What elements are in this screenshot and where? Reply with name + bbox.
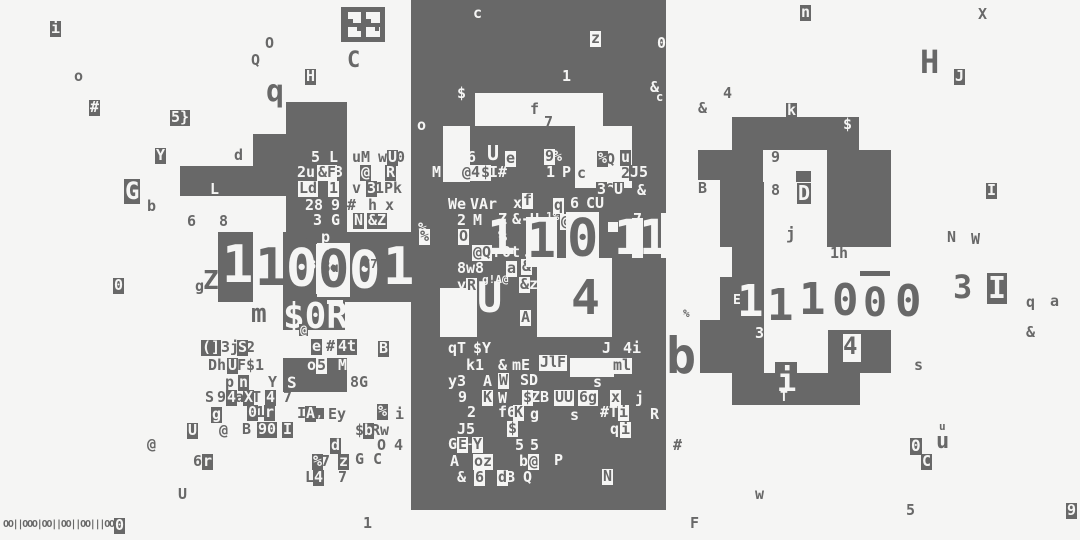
glitch-char: j xyxy=(786,226,796,243)
glitch-char: 1Pk xyxy=(375,181,402,197)
glitch-char: # xyxy=(89,100,100,116)
glitch-char: 9 xyxy=(217,390,226,406)
glitch-char: @4 xyxy=(461,165,481,181)
glitch-char: 8 xyxy=(321,259,331,276)
glitch-char: 4 xyxy=(843,334,857,359)
glitch-char: j xyxy=(635,391,644,407)
glitch-char: J xyxy=(954,69,965,85)
glitch-char: g xyxy=(530,407,539,423)
glitch-char: f xyxy=(530,102,539,118)
glitch-char: u xyxy=(936,431,949,454)
glitch-char: % xyxy=(419,229,430,245)
glitch-char: @ xyxy=(147,437,156,453)
glitch-char: 0 xyxy=(894,279,923,325)
glitch-char: 2 xyxy=(246,340,255,356)
glitch-char: U xyxy=(187,423,198,439)
glitch-char: a xyxy=(1050,294,1059,310)
glitch-char: x xyxy=(385,198,394,214)
glitch-char: C xyxy=(373,452,382,468)
glitch-char: 0 xyxy=(831,278,860,324)
glitch-char: r xyxy=(264,405,275,421)
glitch-char: 5 xyxy=(638,165,649,181)
glitch-char: SD xyxy=(520,373,538,389)
glitch-char: 4 xyxy=(723,86,732,102)
glitch-char: 8 xyxy=(219,214,228,230)
glitch-char: F$1 xyxy=(237,358,264,374)
glitch-char: B xyxy=(378,341,389,357)
glitch-char: 9 xyxy=(458,390,467,406)
glitch-char: F xyxy=(556,355,567,371)
glitch-char: R xyxy=(650,407,659,423)
glitch-char: 3 xyxy=(953,271,972,304)
glitch-char: G xyxy=(448,437,457,453)
glitch-char: H xyxy=(920,46,939,79)
glitch-char: Q xyxy=(606,152,615,168)
glitch-char: 6 xyxy=(474,470,485,486)
glitch-char: Y xyxy=(472,437,483,453)
glitch-char: q xyxy=(266,76,284,107)
glitch-char: k1 xyxy=(466,358,484,374)
glitch-char: U xyxy=(613,182,624,198)
glitch-char: U xyxy=(477,276,502,320)
glitch-char: ' xyxy=(219,295,230,314)
glitch-char: W xyxy=(498,373,509,389)
glitch-char: N xyxy=(602,469,613,485)
glitch-char: M xyxy=(338,358,347,374)
glitch-char: , xyxy=(315,408,324,419)
glitch-char: o xyxy=(74,69,83,85)
glitch-char: B xyxy=(242,422,251,438)
glitch-char: @ xyxy=(299,324,308,336)
glitch-char: H xyxy=(305,69,316,85)
glitch-char: 7 xyxy=(544,115,553,131)
glitch-char: 1h xyxy=(830,246,848,262)
glitch-char: N xyxy=(604,193,611,205)
glitch-char: 1 xyxy=(526,217,557,267)
glitch-char: $ xyxy=(507,421,518,437)
glitch-char: 6g xyxy=(578,390,598,406)
glitch-char: O xyxy=(458,229,469,245)
glitch-char: (] xyxy=(201,340,221,356)
glitch-char: 0 xyxy=(566,212,599,266)
glitch-char: c xyxy=(656,91,663,103)
glitch-char: Ey xyxy=(328,407,346,423)
glitch-char: e xyxy=(311,339,322,355)
glitch-char: R xyxy=(466,278,477,294)
glitch-char: o xyxy=(417,118,426,134)
glitch-char: P xyxy=(554,453,563,469)
glitch-char: D xyxy=(797,183,811,204)
glitch-char: 1 xyxy=(737,279,764,325)
glitch-char: 6 xyxy=(193,454,202,470)
glitch-char: Ld xyxy=(298,181,318,197)
glitch-char: 5 xyxy=(316,358,327,374)
icon-nub xyxy=(357,27,361,31)
glitch-char: I xyxy=(987,273,1007,304)
glitch-char: K xyxy=(482,390,493,406)
glitch-char: v xyxy=(352,181,361,197)
glitch-char: W xyxy=(971,232,980,248)
glitch-char: Z xyxy=(203,268,219,295)
glitch-char: UU xyxy=(554,390,574,406)
glitch-char: 0 xyxy=(862,283,888,325)
glitch-char: & xyxy=(457,470,466,486)
glitch-char: Y xyxy=(155,148,166,164)
glitch-char: w xyxy=(755,487,764,503)
glitch-char: P xyxy=(562,165,571,181)
glitch-char: & xyxy=(637,183,646,199)
glitch-char: J xyxy=(602,341,611,357)
glitch-char: 0 xyxy=(910,438,922,455)
glitch-char: S xyxy=(287,375,297,392)
glitch-char: O xyxy=(265,36,274,52)
glitch-char: c" xyxy=(318,247,330,257)
glitch-char: 1 xyxy=(255,241,286,295)
glitch-char: 4 xyxy=(394,438,403,454)
glitch-char: c xyxy=(473,6,482,22)
glitch-char: U xyxy=(178,487,187,503)
glitch-char: m xyxy=(251,301,267,328)
icon-nub xyxy=(366,19,371,23)
glitch-char: 0 xyxy=(657,36,666,52)
glitch-char: y xyxy=(457,278,466,294)
glitch-char: # xyxy=(326,339,335,355)
glitch-char: C7 xyxy=(363,258,377,270)
glitch-char: 1 xyxy=(546,165,555,181)
glitch-char: B xyxy=(506,470,515,486)
glitch-char: 7 xyxy=(338,470,347,486)
glitch-char: U xyxy=(487,143,499,164)
glitch-char: 3 xyxy=(755,326,764,342)
glitch-char: i xyxy=(620,422,631,438)
glitch-char: Q xyxy=(251,53,260,69)
glitch-char: & xyxy=(1026,325,1035,341)
glitch-char: 1 xyxy=(562,69,571,85)
glitch-char: d xyxy=(234,148,243,164)
glitch-char: 6 xyxy=(187,214,196,230)
glitch-char: 1 xyxy=(363,516,372,532)
glitch-char: M xyxy=(473,213,482,229)
glitch-char: s xyxy=(570,408,579,424)
glitch-char: G xyxy=(331,213,340,229)
glitch-char: C xyxy=(347,50,360,73)
glitch-char: T xyxy=(780,391,788,405)
glitch-block xyxy=(700,320,732,373)
glitch-char: qT xyxy=(448,341,466,357)
glitch-char: I# xyxy=(489,165,507,181)
glitch-char: 7 xyxy=(283,390,292,406)
glitch-char: ml xyxy=(612,358,632,374)
glitch-char: i xyxy=(618,405,629,421)
glitch-char: n xyxy=(800,5,811,21)
glitch-char: c xyxy=(577,166,586,182)
glitch-char: k xyxy=(786,103,797,119)
glitch-char: L xyxy=(210,182,219,198)
glitch-char: b xyxy=(666,330,696,382)
glitch-block xyxy=(698,150,720,180)
glitch-char: i xyxy=(50,21,61,37)
glitch-char: $0R xyxy=(283,298,348,335)
glitch-char: r xyxy=(202,454,213,470)
glitch-char: i xyxy=(395,407,404,423)
glitch-char: 0 xyxy=(113,278,124,294)
glitch-char: G xyxy=(355,452,364,468)
glitch-char: s xyxy=(914,358,923,374)
glitch-char: z9 xyxy=(529,277,547,293)
glitch-char: 5} xyxy=(170,110,190,126)
barcode-text: OO||OOO|OO||OO||OO|||OOO xyxy=(3,520,119,530)
glitch-char: 5 xyxy=(906,503,915,519)
glitch-char: 0 xyxy=(349,244,380,298)
glitch-char: 2 xyxy=(467,405,476,421)
glitch-char: 1 xyxy=(639,214,668,264)
glitch-char: S xyxy=(205,390,214,406)
glitch-block xyxy=(732,117,859,150)
glitch-char: 1 xyxy=(799,277,826,323)
glitch-char: 8 xyxy=(771,183,780,199)
glitch-block xyxy=(180,166,283,196)
glitch-char: Q xyxy=(523,470,532,486)
glitch-char: 1 xyxy=(383,240,414,294)
glitch-char: 1 xyxy=(487,214,516,264)
glitch-char: % xyxy=(377,404,388,420)
glitch-char: f xyxy=(522,193,533,209)
glitch-block xyxy=(860,271,890,276)
glitch-char: q xyxy=(1026,295,1035,311)
glitch-char: % xyxy=(683,308,690,319)
glitch-char: q xyxy=(610,422,619,438)
glitch-char: # xyxy=(673,438,682,454)
light-patch xyxy=(720,247,732,277)
glitch-char: 3 xyxy=(309,259,316,271)
glitch-char: u xyxy=(331,262,339,276)
glitch-canvas: OO||OOO|OO||OO||OO|||OOO io#5}YGbd68OQHq… xyxy=(0,0,1080,540)
glitch-char: ZB xyxy=(531,390,549,406)
glitch-char: B xyxy=(698,181,707,197)
glitch-char: 0 xyxy=(396,150,405,166)
glitch-char: 4 xyxy=(571,274,600,324)
glitch-char: &Z xyxy=(367,213,387,229)
glitch-char: @ xyxy=(219,423,228,439)
glitch-char: 0 xyxy=(114,518,125,534)
glitch-char: 3 xyxy=(313,213,322,229)
glitch-char: Dh xyxy=(208,358,226,374)
icon-nub xyxy=(375,27,379,31)
glitch-char: G xyxy=(124,179,140,204)
glitch-char: 1 xyxy=(328,181,339,197)
glitch-char: z xyxy=(590,31,601,47)
glitch-char: $ xyxy=(457,86,466,102)
glitch-char: b xyxy=(147,199,156,215)
glitch-char: M xyxy=(432,165,441,181)
light-patch xyxy=(440,288,477,337)
glitch-block xyxy=(827,150,891,182)
glitch-char: 9 xyxy=(770,150,781,166)
glitch-char: N xyxy=(947,230,956,246)
glitch-char: 4 xyxy=(313,470,324,486)
glitch-char: I xyxy=(986,183,997,199)
glitch-char: 4i xyxy=(623,341,641,357)
glitch-block xyxy=(720,150,763,182)
glitch-char: & xyxy=(698,101,707,117)
glitch-char: o xyxy=(307,358,316,374)
glitch-char: C xyxy=(921,454,932,470)
icon-nub xyxy=(348,19,353,23)
glitch-char: N xyxy=(353,213,364,229)
glitch-char: 4t xyxy=(337,339,357,355)
glitch-char: A xyxy=(520,310,531,326)
glitch-char: F xyxy=(690,516,699,532)
glitch-char: 1 xyxy=(222,238,253,292)
glitch-char: $Y xyxy=(473,341,491,357)
glitch-char: #T xyxy=(600,405,618,421)
glitch-char: 1 xyxy=(767,283,794,329)
glitch-block xyxy=(827,182,891,247)
glitch-char: 8G xyxy=(350,375,368,391)
glitch-char: $ xyxy=(843,117,852,133)
glitch-char: 9 xyxy=(1066,503,1077,519)
glitch-char: 90 xyxy=(257,422,277,438)
glitch-char: X xyxy=(978,7,987,23)
glitch-char: I xyxy=(282,422,293,438)
glitch-char: 2 xyxy=(600,358,609,374)
